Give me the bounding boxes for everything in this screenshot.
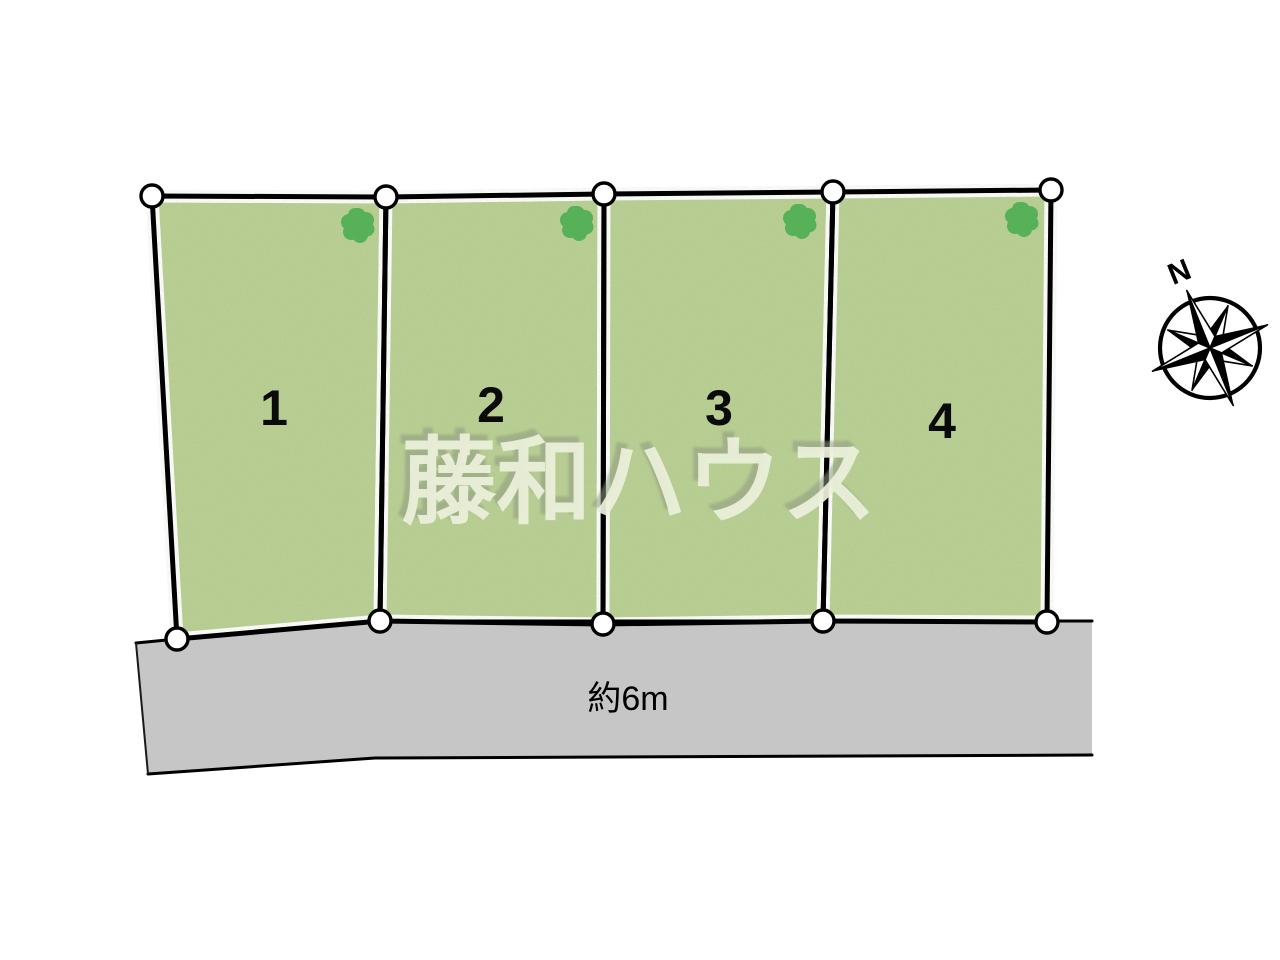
site-plan-image: 1 2 3 4 藤和ハウス 藤和ハウス 約6m — [0, 0, 1280, 960]
survey-point-top-1 — [141, 185, 163, 207]
watermark-text: 藤和ハウス — [401, 430, 876, 536]
watermark: 藤和ハウス 藤和ハウス — [396, 424, 876, 536]
survey-point-top-2 — [375, 186, 397, 208]
survey-point-top-5 — [1040, 179, 1062, 201]
road-width-label: 約6m — [587, 680, 668, 718]
survey-point-top-3 — [593, 183, 615, 205]
lot-number-4: 4 — [928, 393, 956, 449]
lot-number-1: 1 — [260, 380, 288, 436]
survey-point-bottom-3 — [592, 613, 614, 635]
survey-point-bottom-5 — [1036, 611, 1058, 633]
survey-point-bottom-4 — [812, 610, 834, 632]
survey-point-top-4 — [822, 181, 844, 203]
survey-point-bottom-2 — [369, 610, 391, 632]
lot-map-canvas: 1 2 3 4 藤和ハウス 藤和ハウス 約6m — [0, 0, 1280, 960]
compass-rose: N — [1116, 234, 1280, 429]
compass-north-label: N — [1163, 253, 1195, 292]
survey-point-bottom-1 — [166, 628, 188, 650]
